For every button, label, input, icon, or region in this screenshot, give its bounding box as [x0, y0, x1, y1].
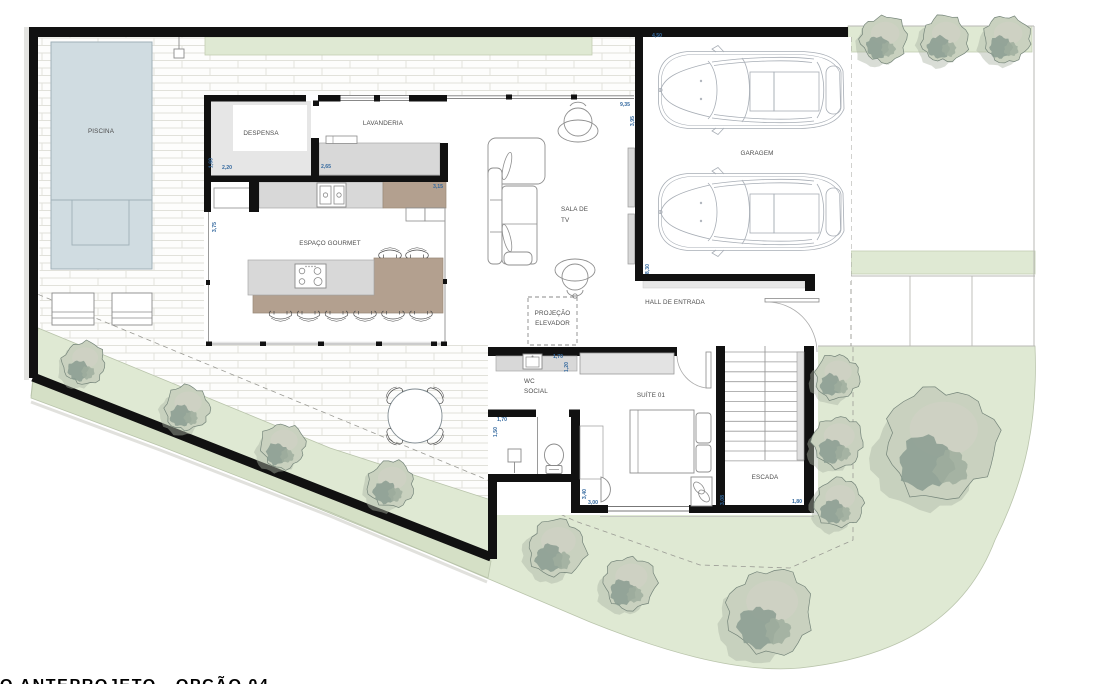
- svg-text:ESCADA: ESCADA: [752, 474, 779, 481]
- svg-text:3,15: 3,15: [433, 184, 443, 190]
- svg-text:4,50: 4,50: [652, 33, 662, 39]
- svg-text:9,35: 9,35: [620, 102, 630, 108]
- svg-text:8,30: 8,30: [645, 264, 651, 274]
- svg-text:LAVANDERIA: LAVANDERIA: [363, 120, 404, 127]
- svg-text:O ANTEPROJETO - OPÇÃO 04: O ANTEPROJETO - OPÇÃO 04: [0, 674, 270, 684]
- svg-text:WC: WC: [524, 378, 535, 385]
- svg-text:TV: TV: [561, 217, 570, 224]
- svg-text:SALA DE: SALA DE: [561, 206, 588, 213]
- svg-text:1,80: 1,80: [792, 499, 802, 505]
- svg-text:2,65: 2,65: [321, 164, 331, 170]
- svg-text:2,20: 2,20: [222, 165, 232, 171]
- svg-text:3,40: 3,40: [582, 489, 588, 499]
- svg-text:1,70: 1,70: [497, 417, 507, 423]
- svg-text:PROJEÇÃO: PROJEÇÃO: [535, 308, 571, 317]
- svg-text:DESPENSA: DESPENSA: [243, 130, 279, 137]
- svg-text:SOCIAL: SOCIAL: [524, 388, 548, 395]
- svg-text:3,95: 3,95: [630, 116, 636, 126]
- svg-text:1,20: 1,20: [564, 362, 570, 372]
- svg-text:3,00: 3,00: [588, 500, 598, 506]
- svg-text:3,08: 3,08: [720, 495, 726, 505]
- svg-text:HALL DE ENTRADA: HALL DE ENTRADA: [645, 299, 705, 306]
- svg-text:ESPAÇO GOURMET: ESPAÇO GOURMET: [299, 240, 361, 247]
- svg-text:1,70: 1,70: [553, 354, 563, 360]
- svg-text:1,60: 1,60: [209, 158, 215, 168]
- svg-text:GARAGEM: GARAGEM: [740, 150, 773, 157]
- svg-text:PISCINA: PISCINA: [88, 128, 115, 135]
- svg-text:3,75: 3,75: [212, 222, 218, 232]
- svg-text:1,50: 1,50: [493, 427, 499, 437]
- svg-text:ELEVADOR: ELEVADOR: [535, 320, 570, 327]
- svg-text:SUÍTE 01: SUÍTE 01: [637, 390, 666, 399]
